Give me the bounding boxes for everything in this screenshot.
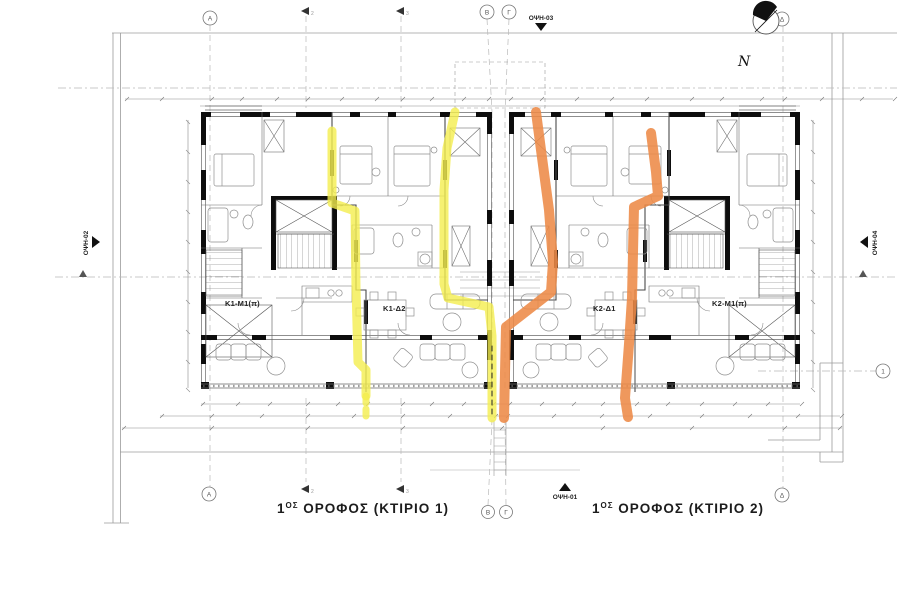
svg-text:Α: Α bbox=[207, 492, 212, 499]
title-building-2: 1ΟΣ ΟΡΟΦΟΣ (ΚΤΙΡΙΟ 2) bbox=[592, 501, 764, 516]
section-marker-bottom-3: 3 bbox=[396, 485, 409, 495]
svg-text:3: 3 bbox=[406, 489, 409, 495]
grid-bubble-right-1: 1 bbox=[876, 364, 890, 378]
north-label: N bbox=[737, 54, 751, 70]
elevation-marker-left: ΟΨΗ-02 bbox=[83, 230, 100, 255]
architectural-drawing-page: { "north": { "label": "N" }, "elevations… bbox=[0, 0, 900, 600]
sheet-titles: 1ΟΣ ΟΡΟΦΟΣ (ΚΤΙΡΙΟ 1) 1ΟΣ ΟΡΟΦΟΣ (ΚΤΙΡΙΟ… bbox=[277, 501, 764, 516]
svg-text:Β: Β bbox=[486, 510, 490, 517]
grid-bubble-bottom-B: Β bbox=[482, 506, 495, 519]
elevation-marker-bottom: ΟΨΗ-01 bbox=[553, 483, 578, 501]
level-markers bbox=[79, 270, 867, 277]
grid-bubble-top-B: Β bbox=[480, 5, 494, 19]
svg-text:ΟΨΗ-01: ΟΨΗ-01 bbox=[553, 494, 578, 501]
floor-plan-svg: Α Β Γ Δ Α Β Γ Δ bbox=[0, 0, 900, 600]
grid-bubble-bottom-A: Α bbox=[202, 487, 216, 501]
section-marker-top-3: 3 bbox=[396, 7, 409, 17]
svg-text:Δ: Δ bbox=[780, 493, 785, 500]
svg-text:Α: Α bbox=[208, 16, 213, 23]
svg-text:Γ: Γ bbox=[507, 10, 511, 17]
svg-text:ΟΨΗ-04: ΟΨΗ-04 bbox=[872, 230, 879, 255]
orange-highlight-right bbox=[625, 133, 658, 417]
svg-text:2: 2 bbox=[311, 11, 314, 17]
svg-text:1: 1 bbox=[881, 369, 885, 376]
grid-bubble-top-G: Γ bbox=[502, 5, 516, 19]
title-building-1: 1ΟΣ ΟΡΟΦΟΣ (ΚΤΙΡΙΟ 1) bbox=[277, 501, 449, 516]
section-marker-bottom-2: 2 bbox=[301, 485, 314, 495]
grid-bubble-bottom-G: Γ bbox=[500, 506, 513, 519]
elevation-marker-right: ΟΨΗ-04 bbox=[860, 230, 879, 255]
svg-text:2: 2 bbox=[311, 489, 314, 495]
svg-text:ΟΨΗ-03: ΟΨΗ-03 bbox=[529, 15, 554, 22]
grid-bubble-bottom-D: Δ bbox=[775, 488, 789, 502]
apartment-label-b2-right: Κ2-Μ1(π) bbox=[712, 299, 747, 308]
svg-text:Γ: Γ bbox=[504, 510, 508, 517]
apartment-label-b1-left: Κ1-Μ1(π) bbox=[225, 299, 260, 308]
yellow-highlight-right bbox=[444, 112, 492, 418]
elevation-marker-top: ΟΨΗ-03 bbox=[529, 15, 554, 31]
north-arrow: N bbox=[737, 1, 779, 70]
svg-text:Δ: Δ bbox=[780, 17, 785, 24]
apartment-label-b1-right: Κ1-Δ2 bbox=[383, 304, 406, 313]
grid-bubble-top-A: Α bbox=[203, 11, 217, 25]
svg-text:3: 3 bbox=[406, 11, 409, 17]
highlight-strokes bbox=[332, 112, 658, 419]
yellow-highlight-left bbox=[332, 131, 366, 396]
svg-text:ΟΨΗ-02: ΟΨΗ-02 bbox=[83, 230, 90, 255]
svg-text:Β: Β bbox=[485, 10, 489, 17]
section-marker-top-2: 2 bbox=[301, 7, 314, 17]
apartment-label-b2-left: Κ2-Δ1 bbox=[593, 304, 616, 313]
